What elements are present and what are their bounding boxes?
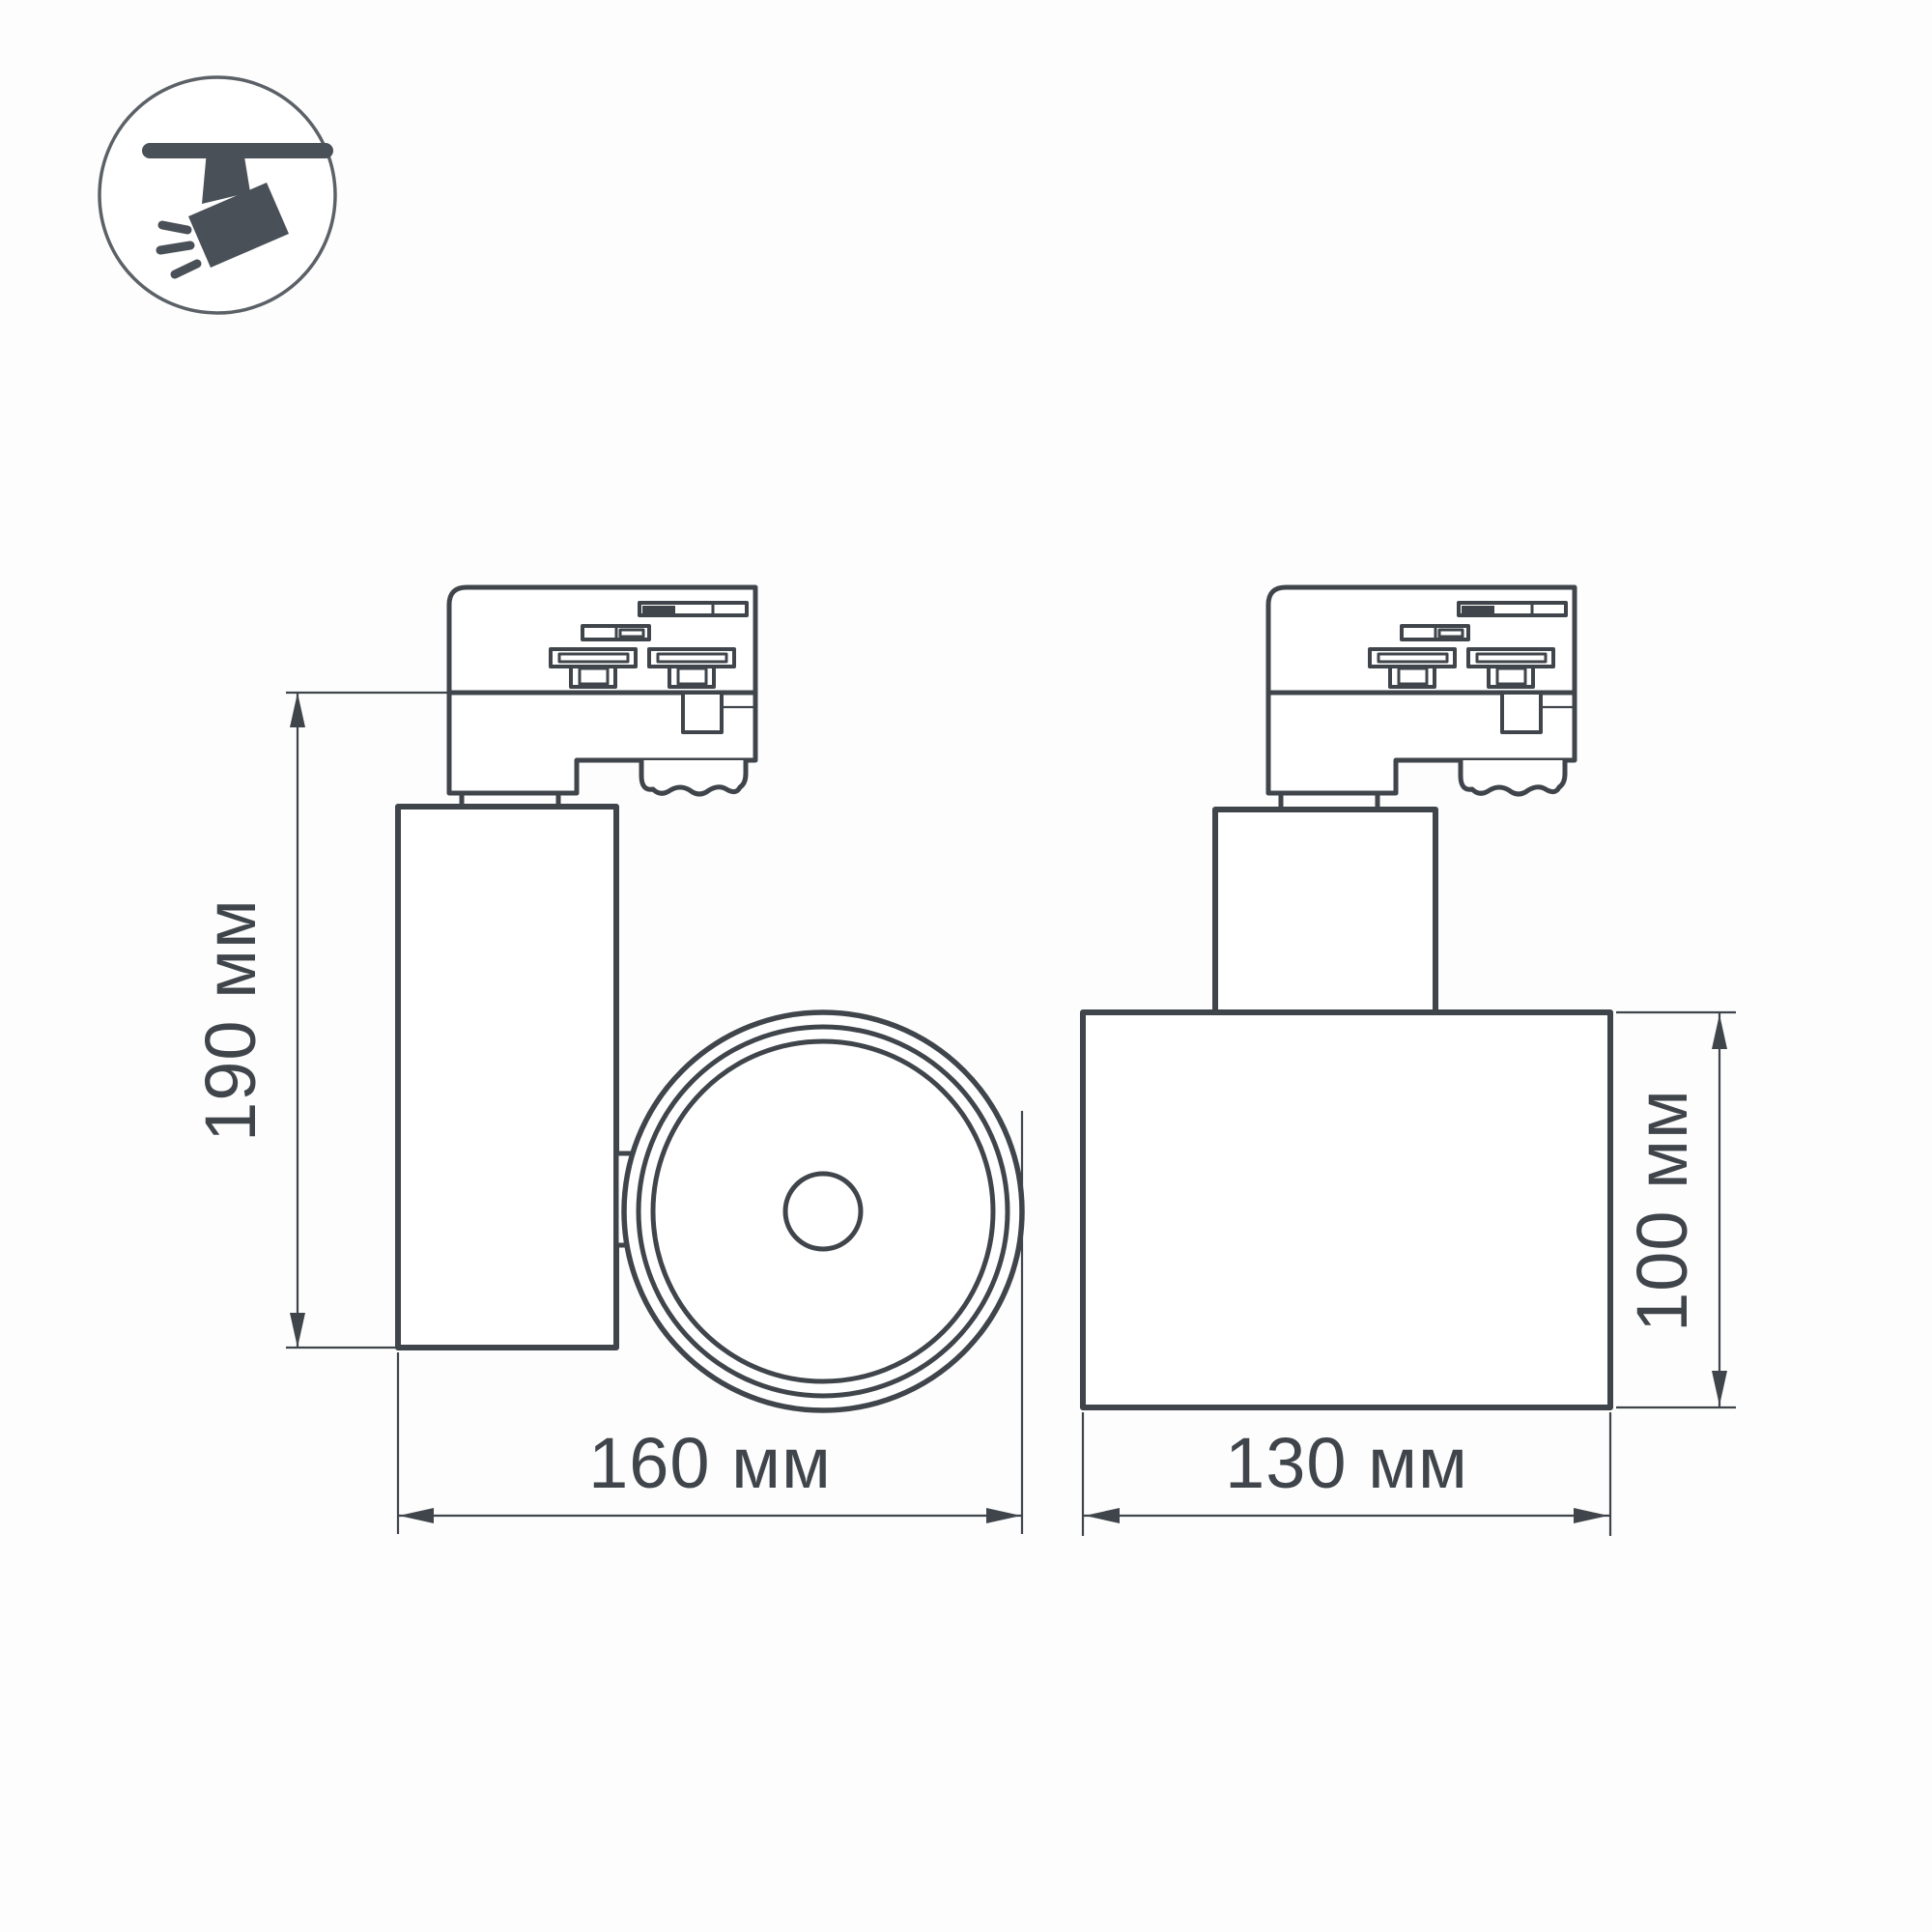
track-light-icon — [99, 77, 335, 313]
side-view-housing — [398, 807, 616, 1348]
side-view-track-adapter — [449, 587, 755, 794]
track-light-dimension-drawing: 190 мм 160 мм 100 мм 130 мм — [0, 0, 1932, 1932]
dimension-height-side-label: 190 мм — [190, 898, 270, 1142]
technical-drawing-page: 190 мм 160 мм 100 мм 130 мм — [0, 0, 1932, 1932]
dimension-height-front-label: 100 мм — [1622, 1089, 1702, 1332]
light-ray-icon — [160, 245, 190, 250]
front-view-housing — [1083, 1012, 1610, 1407]
front-view — [1083, 587, 1610, 1407]
dimension-width-front-label: 130 мм — [1225, 1423, 1468, 1503]
front-view-track-adapter — [1268, 587, 1575, 794]
dimension-width-side-label: 160 мм — [588, 1423, 832, 1503]
light-ray-icon — [162, 225, 187, 230]
lens-disc — [624, 1012, 1022, 1410]
side-view — [398, 587, 1022, 1410]
front-view-arm — [1215, 810, 1435, 1012]
